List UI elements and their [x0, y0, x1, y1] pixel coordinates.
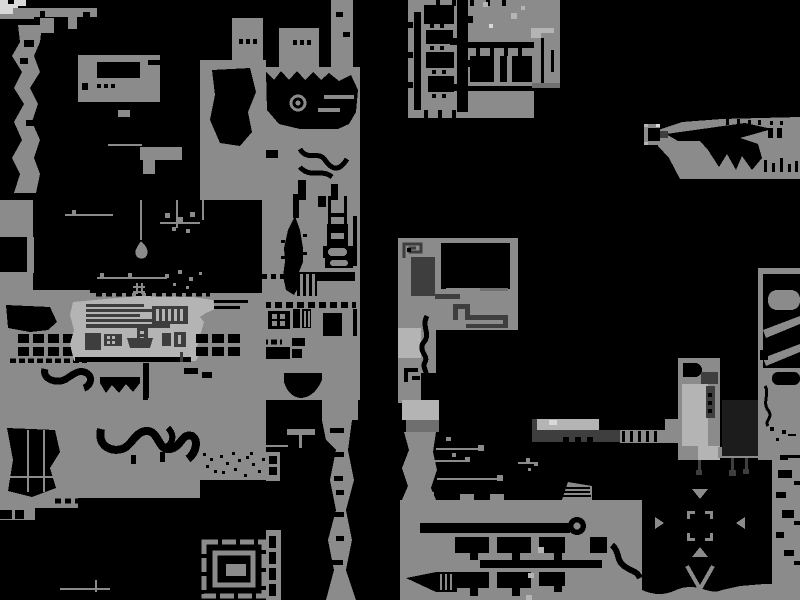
terrain-shape: [465, 304, 470, 320]
terrain-shape: [452, 0, 456, 6]
terrain-shape: [133, 286, 145, 288]
terrain-shape: [772, 372, 800, 385]
terrain-shape: [440, 46, 444, 50]
terrain-shape: [226, 564, 246, 576]
terrain-shape: [450, 84, 458, 91]
terrain-shape: [332, 560, 343, 565]
terrain-shape: [424, 5, 454, 24]
terrain-shape: [317, 272, 355, 281]
terrain-shape: [303, 252, 307, 255]
terrain-shape: [441, 243, 510, 289]
terrain-shape: [764, 136, 766, 142]
terrain-shape: [26, 120, 34, 126]
terrain-shape: [622, 431, 625, 442]
terrain-shape: [398, 328, 421, 358]
terrain-shape: [408, 82, 413, 88]
terrain-shape: [780, 121, 783, 125]
terrain-shape: [228, 400, 248, 404]
terrain-shape: [436, 448, 478, 450]
terrain-shape: [75, 357, 191, 362]
terrain-shape: [708, 409, 712, 413]
game-map-canvas[interactable]: [0, 0, 800, 600]
terrain-shape: [336, 536, 344, 541]
terrain-shape: [683, 363, 702, 377]
terrain-shape: [660, 131, 668, 138]
terrain-shape: [300, 40, 304, 45]
terrain-shape: [272, 321, 277, 326]
terrain-shape: [65, 214, 113, 216]
terrain-shape: [770, 427, 774, 431]
terrain-shape: [442, 70, 446, 74]
terrain-shape: [497, 475, 503, 481]
terrain-shape: [511, 13, 517, 19]
terrain-shape: [470, 550, 478, 560]
terrain-shape: [518, 48, 522, 56]
terrain-shape: [776, 492, 786, 498]
terrain-shape: [307, 40, 311, 45]
terrain-shape: [450, 38, 458, 45]
terrain-shape: [490, 48, 494, 56]
terrain-shape: [162, 309, 165, 321]
terrain-shape: [590, 537, 607, 553]
terrain-shape: [705, 538, 713, 541]
terrain-shape: [43, 430, 45, 492]
terrain-shape: [466, 324, 508, 328]
terrain-shape: [502, 0, 506, 6]
terrain-shape: [489, 24, 493, 28]
terrain-shape: [176, 200, 178, 228]
terrain-shape: [336, 12, 343, 17]
terrain-shape: [656, 124, 660, 127]
terrain-shape: [701, 372, 718, 384]
terrain-shape: [512, 56, 532, 82]
terrain-shape: [299, 435, 302, 448]
terrain-shape: [269, 456, 277, 464]
terrain-shape: [214, 300, 248, 303]
terrain-shape: [563, 495, 591, 497]
terrain-shape: [480, 560, 602, 568]
terrain-shape: [794, 521, 800, 525]
terrain-shape: [239, 39, 243, 44]
terrain-shape: [72, 210, 76, 214]
terrain-shape: [521, 6, 525, 10]
terrain-shape: [162, 333, 171, 346]
terrain-shape: [232, 452, 235, 455]
terrain-shape: [446, 437, 451, 441]
terrain-shape: [330, 213, 344, 217]
terrain-shape: [322, 400, 358, 420]
terrain-shape: [293, 194, 299, 218]
terrain-shape: [85, 333, 101, 350]
terrain-shape: [160, 452, 165, 462]
terrain-shape: [483, 2, 488, 7]
terrain-shape: [687, 538, 695, 541]
terrain-shape: [470, 588, 478, 596]
terrain-shape: [794, 481, 800, 485]
terrain-shape: [262, 458, 265, 461]
terrain-shape: [174, 309, 177, 321]
terrain-shape: [196, 334, 208, 343]
terrain-shape: [280, 314, 285, 319]
terrain-shape: [760, 350, 768, 360]
terrain-shape: [143, 363, 149, 400]
terrain-shape: [148, 60, 160, 65]
terrain-shape: [86, 309, 152, 312]
terrain-shape: [433, 460, 465, 462]
terrain-shape: [745, 458, 748, 469]
terrain-shape: [323, 313, 342, 336]
terrain-shape: [480, 288, 508, 291]
terrain-shape: [234, 468, 237, 471]
terrain-shape: [148, 398, 174, 404]
terrain-shape: [83, 12, 90, 17]
terrain-shape: [186, 229, 190, 233]
terrain-shape: [268, 311, 290, 329]
terrain-shape: [777, 128, 782, 138]
terrain-shape: [708, 401, 712, 405]
terrain-shape: [539, 572, 565, 586]
terrain-shape: [127, 338, 153, 348]
terrain-shape: [794, 561, 800, 565]
terrain-shape: [512, 550, 520, 560]
terrain-shape: [269, 584, 276, 596]
terrain-shape: [436, 0, 440, 6]
terrain-shape: [782, 510, 794, 518]
cave-west: [210, 68, 256, 146]
terrain-shape: [782, 430, 786, 434]
terrain-shape: [450, 574, 452, 590]
terrain-shape: [414, 12, 421, 110]
terrain-shape: [538, 547, 544, 553]
terrain-shape: [442, 94, 446, 98]
terrain-shape: [293, 309, 300, 328]
terrain-shape: [280, 321, 285, 326]
terrain-shape: [133, 291, 145, 293]
terrain-shape: [710, 511, 713, 519]
terrain-shape: [190, 212, 195, 217]
terrain-shape: [328, 248, 347, 256]
terrain-shape: [541, 38, 544, 83]
terrain-shape: [7, 428, 60, 497]
terrain-shape: [566, 487, 590, 489]
terrain-shape: [104, 334, 122, 346]
terrain-shape: [331, 233, 344, 239]
terrain-shape: [324, 95, 354, 99]
terrain-shape: [220, 455, 223, 458]
terrain-shape: [644, 142, 648, 145]
terrain-shape: [281, 240, 285, 243]
terrain-shape: [743, 469, 749, 474]
terrain-shape: [264, 218, 266, 252]
terrain-shape: [246, 456, 249, 459]
terrain-shape: [532, 83, 560, 88]
terrain-shape: [540, 28, 554, 33]
terrain-shape: [795, 161, 798, 172]
terrain-shape: [281, 256, 285, 259]
terrain-shape: [698, 460, 701, 470]
terrain-shape: [408, 52, 413, 58]
terrain-shape: [332, 512, 344, 517]
terrain-shape: [86, 314, 140, 317]
terrain-shape: [526, 595, 532, 600]
terrain-shape: [271, 274, 276, 279]
terrain-shape: [68, 17, 77, 29]
terrain-shape: [420, 523, 570, 533]
terrain-shape: [298, 180, 306, 200]
terrain-shape: [332, 452, 344, 457]
terrain-shape: [228, 334, 240, 343]
terrain-shape: [551, 50, 554, 72]
terrain-shape: [226, 462, 229, 465]
terrain-shape: [318, 108, 340, 112]
terrain-shape: [437, 478, 497, 480]
terrain-shape: [758, 120, 761, 125]
terrain-shape: [512, 588, 520, 596]
terrain-shape: [262, 274, 267, 279]
terrain-shape: [648, 128, 660, 141]
terrain-shape: [768, 128, 773, 138]
terrain-shape: [630, 431, 633, 442]
terrain-shape: [300, 274, 303, 296]
terrain-shape: [330, 260, 348, 266]
terrain-shape: [140, 331, 144, 334]
terrain-shape: [202, 372, 212, 378]
terrain-shape: [770, 121, 773, 125]
terrain-shape: [452, 453, 456, 457]
terrain-shape: [500, 56, 507, 82]
eye-room: [266, 71, 358, 129]
terrain-shape: [40, 18, 54, 33]
terrain-shape: [312, 274, 315, 296]
terrain-shape: [446, 288, 480, 291]
terrain-shape: [476, 48, 480, 56]
terrain-shape: [202, 200, 204, 220]
terrain-shape: [440, 24, 444, 28]
terrain-shape: [353, 216, 357, 266]
terrain-shape: [280, 274, 285, 279]
terrain-shape: [48, 347, 59, 356]
terrain-shape: [156, 309, 159, 321]
terrain-shape: [460, 494, 474, 500]
left-mass: [0, 200, 33, 237]
terrain-shape: [112, 341, 115, 344]
terrain-shape: [534, 462, 538, 466]
terrain-shape: [250, 452, 253, 455]
terrain-shape: [764, 140, 788, 142]
terrain-shape: [214, 306, 240, 309]
terrain-shape: [528, 573, 534, 578]
terrain-shape: [780, 158, 783, 172]
terrain-shape: [186, 286, 189, 289]
terrain-shape: [100, 377, 140, 393]
terrain-shape: [279, 28, 319, 67]
terrain-shape: [768, 290, 800, 310]
terrain-shape: [33, 347, 44, 356]
terrain-shape: [526, 458, 530, 462]
terrain-shape: [404, 372, 408, 382]
terrain-shape: [737, 119, 740, 125]
terrain-shape: [445, 574, 447, 590]
terrain-shape: [222, 471, 225, 474]
terrain-shape: [28, 398, 50, 404]
terrain-shape: [564, 491, 590, 493]
terrain-shape: [440, 574, 442, 590]
terrain-shape: [296, 101, 301, 106]
terrain-shape: [212, 334, 224, 343]
terrain-shape: [266, 445, 288, 447]
terrain-shape: [131, 455, 136, 464]
terrain-shape: [180, 309, 183, 321]
terrain-shape: [303, 234, 307, 237]
terrain-shape: [118, 110, 130, 117]
terrain-shape: [27, 237, 34, 273]
terrain-shape: [490, 494, 504, 500]
terrain-shape: [398, 358, 421, 403]
terrain-shape: [246, 39, 250, 44]
terrain-shape: [554, 586, 562, 592]
terrain-shape: [178, 335, 181, 344]
terrain-shape: [0, 510, 12, 519]
terrain-shape: [470, 56, 494, 82]
terrain-shape: [404, 368, 418, 372]
terrain-shape: [478, 445, 484, 451]
terrain-shape: [470, 315, 508, 320]
terrain-shape: [698, 446, 720, 460]
terrain-shape: [432, 94, 436, 98]
terrain-shape: [776, 532, 784, 538]
terrain-shape: [534, 0, 560, 88]
terrain-shape: [95, 580, 97, 592]
terrain-shape: [100, 273, 104, 277]
terrain-shape: [18, 347, 29, 356]
terrain-shape: [308, 311, 310, 327]
terrain-shape: [143, 160, 155, 174]
terrain-shape: [531, 28, 541, 38]
terrain-shape: [438, 110, 442, 118]
terrain-shape: [252, 463, 255, 466]
terrain-shape: [528, 468, 531, 471]
terrain-shape: [292, 338, 305, 346]
terrain-shape: [330, 428, 344, 433]
game-map-viewport: [0, 0, 800, 600]
terrain-shape: [687, 511, 690, 519]
terrain-shape: [430, 46, 434, 50]
terrain-shape: [729, 470, 736, 476]
terrain-shape: [108, 144, 142, 146]
terrain-shape: [165, 213, 170, 218]
terrain-shape: [470, 0, 474, 6]
terrain-shape: [465, 457, 470, 462]
terrain-shape: [304, 311, 306, 327]
terrain-shape: [210, 458, 213, 461]
terrain-shape: [33, 334, 44, 343]
terrain-shape: [406, 420, 439, 432]
terrain-shape: [269, 568, 276, 580]
terrain-shape: [353, 309, 357, 336]
terrain-shape: [97, 62, 140, 78]
terrain-shape: [336, 490, 344, 495]
terrain-shape: [112, 336, 115, 339]
terrain-shape: [48, 334, 59, 343]
terrain-shape: [426, 52, 454, 68]
terrain-shape: [646, 431, 649, 442]
terrain-shape: [128, 273, 132, 277]
terrain-shape: [178, 217, 183, 222]
terrain-shape: [726, 119, 729, 125]
terrain-shape: [402, 400, 439, 420]
terrain-shape: [107, 341, 110, 344]
terrain-shape: [497, 572, 531, 588]
terrain-shape: [178, 270, 182, 274]
terrain-shape: [708, 393, 712, 397]
terrain-shape: [269, 536, 276, 548]
terrain-shape: [328, 196, 331, 226]
terrain-shape: [228, 347, 240, 356]
terrain-shape: [418, 492, 434, 500]
terrain-shape: [772, 163, 775, 172]
terrain-shape: [549, 420, 557, 425]
terrain-shape: [776, 438, 779, 441]
terrain-shape: [430, 24, 434, 28]
terrain-shape: [654, 431, 657, 442]
terrain-shape: [644, 124, 648, 127]
terrain-shape: [6, 305, 57, 332]
terrain-shape: [412, 376, 420, 380]
terrain-shape: [272, 314, 277, 319]
terrain-shape: [20, 58, 28, 64]
terrain-shape: [788, 164, 791, 172]
terrain-shape: [60, 588, 110, 590]
terrain-shape: [107, 336, 110, 339]
terrain-shape: [455, 572, 489, 588]
terrain-shape: [8, 0, 14, 4]
terrain-shape: [160, 222, 200, 224]
terrain-shape: [563, 437, 569, 443]
terrain-shape: [331, 184, 338, 200]
terrain-shape: [343, 32, 350, 37]
terrain-shape: [184, 368, 198, 374]
terrain-shape: [537, 419, 599, 430]
terrain-shape: [504, 48, 508, 56]
terrain-shape: [518, 462, 534, 464]
terrain-shape: [344, 196, 347, 226]
terrain-shape: [408, 22, 413, 28]
terrain-shape: [764, 160, 767, 172]
terrain-shape: [334, 476, 343, 481]
terrain-shape: [10, 476, 62, 478]
terrain-shape: [638, 431, 641, 442]
terrain-shape: [172, 227, 176, 231]
terrain-shape: [203, 453, 206, 456]
terrain-shape: [111, 84, 115, 88]
terrain-shape: [18, 334, 29, 343]
terrain-shape: [293, 40, 297, 45]
terrain-shape: [97, 277, 167, 279]
terrain-shape: [24, 40, 34, 47]
terrain-shape: [407, 248, 411, 252]
terrain-shape: [731, 458, 734, 470]
terrain-shape: [40, 11, 45, 17]
terrain-shape: [435, 294, 460, 299]
terrain-shape: [575, 437, 581, 443]
terrain-shape: [468, 86, 534, 91]
terrain-shape: [189, 277, 193, 281]
terrain-shape: [140, 147, 182, 160]
terrain-shape: [587, 437, 593, 443]
terrain-shape: [82, 83, 88, 90]
terrain-shape: [411, 257, 435, 296]
terrain-shape: [104, 84, 108, 88]
